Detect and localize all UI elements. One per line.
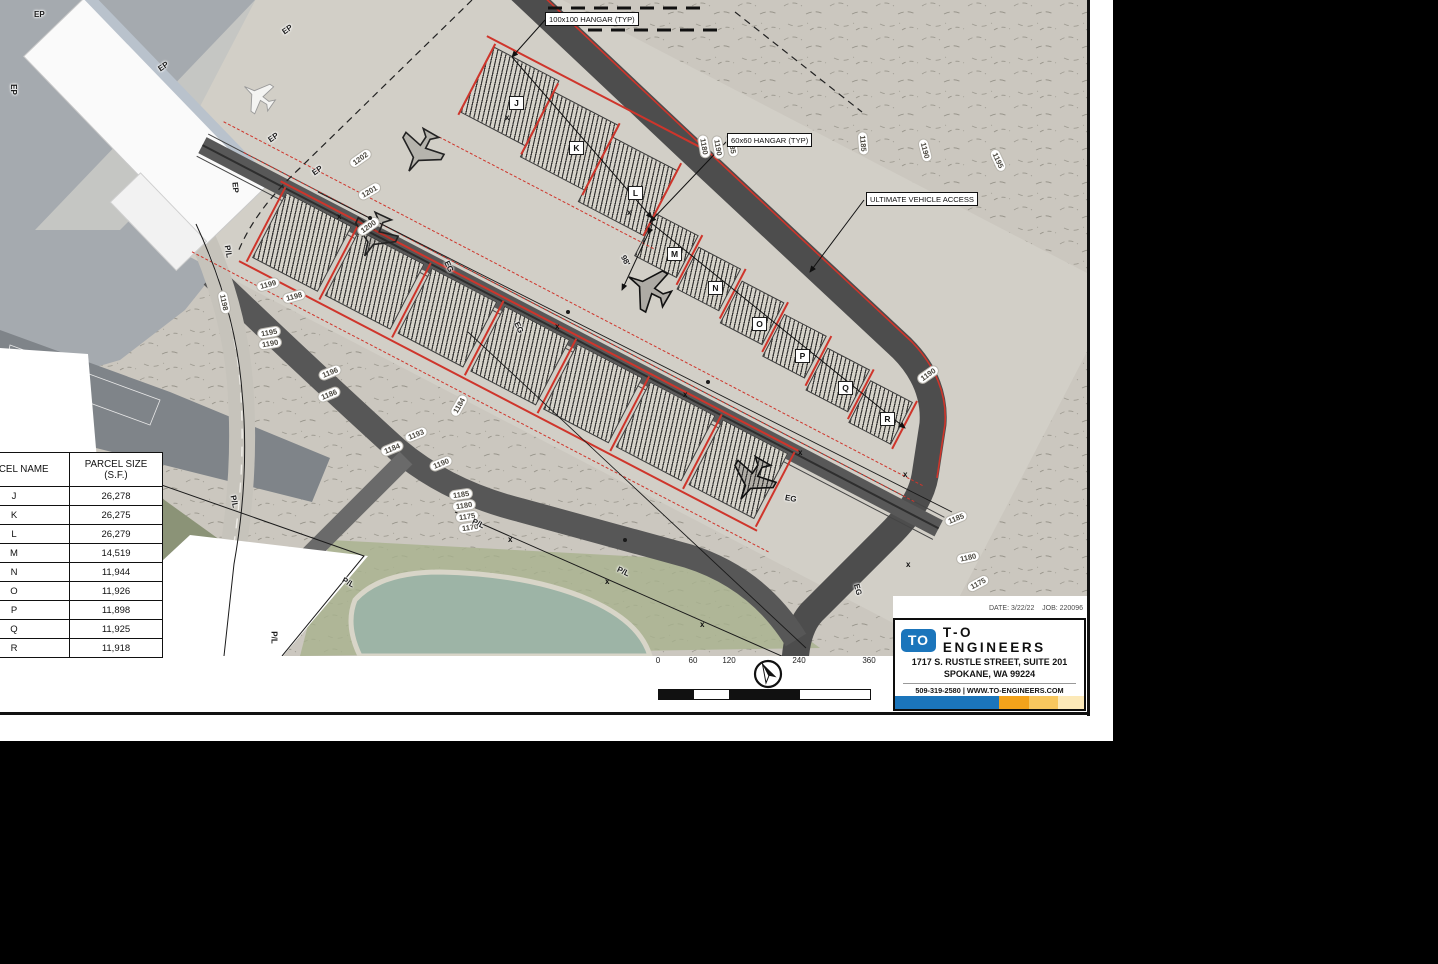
- survey-dot: [566, 310, 570, 314]
- parcel-size-cell: 14,519: [70, 544, 163, 563]
- parcel-name-cell: Q: [0, 620, 70, 639]
- stripe-segment: [1029, 696, 1057, 709]
- parcel-name-cell: M: [0, 544, 70, 563]
- aircraft-outline: [390, 122, 450, 182]
- scale-bar-segment: [694, 690, 729, 699]
- typical-line-mr: [650, 222, 905, 428]
- existing-grade-line: [468, 332, 806, 648]
- x-tick-mark: x: [903, 470, 907, 479]
- x-tick-mark: x: [700, 620, 704, 629]
- parcel-size-header: PARCEL SIZE (S.F.): [70, 453, 163, 487]
- hangar-letter-tag: L: [628, 186, 643, 200]
- parcel-size-cell: 11,926: [70, 582, 163, 601]
- firm-contact: 509-319-2580 | WWW.TO-ENGINEERS.COM: [895, 686, 1084, 695]
- ep-label: EP: [230, 182, 240, 193]
- x-tick-mark: x: [798, 448, 802, 457]
- aircraft-outline: [618, 258, 678, 318]
- x-tick-mark: x: [605, 577, 609, 586]
- stripe-segment: [1058, 696, 1084, 709]
- parcel-name-cell: R: [0, 639, 70, 658]
- table-row: O11,926: [0, 582, 163, 601]
- property-line: [455, 512, 870, 656]
- callout-box: ULTIMATE VEHICLE ACCESS: [866, 192, 978, 206]
- x-tick-mark: x: [337, 212, 341, 221]
- existing-grade-line: [318, 192, 952, 512]
- parcel-size-cell: 11,925: [70, 620, 163, 639]
- contour-label: 1185: [857, 131, 870, 156]
- parcel-name-cell: K: [0, 506, 70, 525]
- pl-label: P/L: [270, 631, 279, 643]
- parcel-name-cell: J: [0, 487, 70, 506]
- scale-tick-label: 0: [656, 656, 660, 665]
- hangar-letter-tag: Q: [838, 381, 853, 395]
- pavement-edge-dashed: [238, 0, 472, 252]
- parcel-size-cell: 11,944: [70, 563, 163, 582]
- survey-dot: [623, 538, 627, 542]
- hangar-letter-tag: P: [795, 349, 810, 363]
- stripe-segment: [895, 696, 999, 709]
- hangar-letter-tag: O: [752, 317, 767, 331]
- callout-box: 60x60 HANGAR (TYP): [727, 133, 812, 147]
- brand-color-stripe: [895, 696, 1084, 709]
- scale-bar-segment: [800, 690, 870, 699]
- x-tick-mark: x: [627, 208, 631, 217]
- scale-tick-label: 240: [792, 656, 805, 665]
- aircraft-white: [235, 73, 281, 119]
- parcel-size-cell: 26,278: [70, 487, 163, 506]
- survey-dot: [706, 380, 710, 384]
- aircraft-outline: [722, 450, 782, 510]
- eg-label: EG: [784, 493, 797, 504]
- pavement-edge-dashed: [735, 12, 862, 112]
- ep-label: EP: [34, 10, 45, 19]
- table-row: L26,279: [0, 525, 163, 544]
- x-tick-mark: x: [508, 535, 512, 544]
- sheet-border-bottom: [0, 712, 1090, 715]
- site-plan-map: 1202120112001199119811981195119011961186…: [0, 0, 1088, 656]
- parcel-table: PARCEL NAME PARCEL SIZE (S.F.) J26,278K2…: [0, 452, 163, 658]
- hangar-letter-tag: N: [708, 281, 723, 295]
- table-row: R11,918: [0, 639, 163, 658]
- hangar-letter-tag: K: [569, 141, 584, 155]
- pl-label: P/L: [223, 245, 234, 259]
- parcel-name-cell: P: [0, 601, 70, 620]
- parcel-size-cell: 11,918: [70, 639, 163, 658]
- parcel-size-cell: 26,275: [70, 506, 163, 525]
- scale-tick-label: 120: [722, 656, 735, 665]
- parcel-name-cell: O: [0, 582, 70, 601]
- table-row: P11,898: [0, 601, 163, 620]
- divider: [903, 683, 1076, 684]
- x-tick-mark: x: [555, 322, 559, 331]
- scale-bar-segment: [659, 690, 694, 699]
- hangar-letter-tag: M: [667, 247, 682, 261]
- sheet-white-wedge: [0, 348, 97, 466]
- annotation-layer: [0, 0, 1088, 656]
- survey-dot: [368, 216, 372, 220]
- firm-address-line1: 1717 S. RUSTLE STREET, SUITE 201: [895, 657, 1084, 669]
- drawing-sheet: 1202120112001199119811981195119011961186…: [0, 0, 1113, 741]
- scale-bar: 060120240360: [640, 656, 890, 712]
- stripe-segment: [999, 696, 1029, 709]
- x-tick-mark: x: [683, 390, 687, 399]
- table-row: K26,275: [0, 506, 163, 525]
- callout-box: 100x100 HANGAR (TYP): [545, 12, 639, 26]
- x-tick-mark: x: [906, 560, 910, 569]
- firm-address-line2: SPOKANE, WA 99224: [895, 669, 1084, 681]
- table-row: Q11,925: [0, 620, 163, 639]
- scale-tick-label: 60: [689, 656, 698, 665]
- parcel-name-cell: L: [0, 525, 70, 544]
- leader-vehicle-access: [810, 200, 864, 272]
- table-row: N11,944: [0, 563, 163, 582]
- x-tick-mark: x: [505, 113, 509, 122]
- parcel-size-cell: 11,898: [70, 601, 163, 620]
- leader-100x100: [512, 20, 545, 57]
- scale-tick-label: 360: [862, 656, 875, 665]
- parcel-name-header: PARCEL NAME: [0, 453, 70, 487]
- hangar-letter-tag: J: [509, 96, 524, 110]
- table-row: M14,519: [0, 544, 163, 563]
- ep-label: EP: [9, 84, 18, 95]
- north-arrow-icon: [748, 654, 788, 694]
- parcel-size-cell: 26,279: [70, 525, 163, 544]
- parcel-name-cell: N: [0, 563, 70, 582]
- table-row: J26,278: [0, 487, 163, 506]
- hangar-letter-tag: R: [880, 412, 895, 426]
